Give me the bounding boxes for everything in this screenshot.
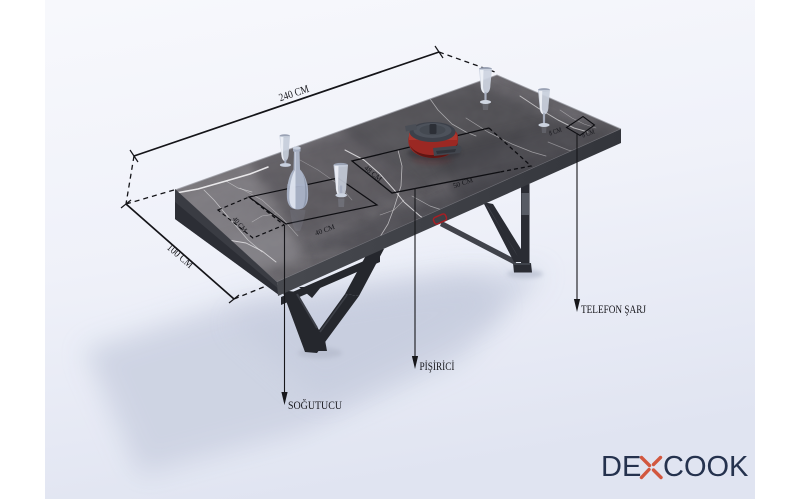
svg-text:COOK: COOK (663, 451, 749, 483)
svg-text:TELEFON ŞARJ: TELEFON ŞARJ (581, 302, 646, 316)
svg-text:PİŞİRİCİ: PİŞİRİCİ (420, 359, 455, 373)
svg-text:DE: DE (601, 451, 641, 483)
svg-text:SOĞUTUCU: SOĞUTUCU (288, 398, 342, 412)
